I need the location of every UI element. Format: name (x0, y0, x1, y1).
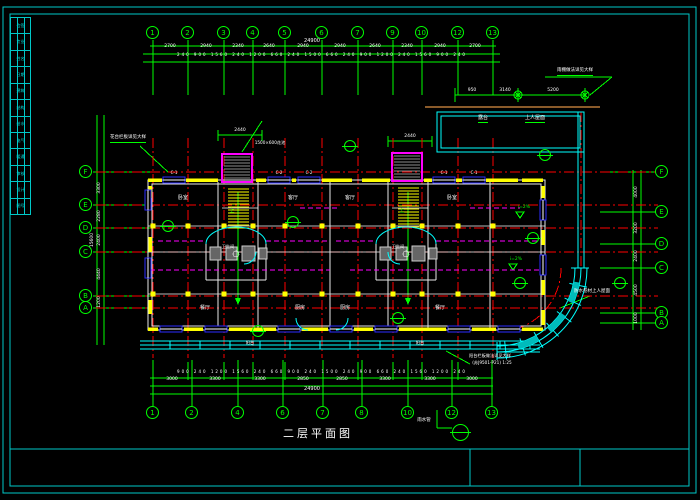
axis-bubble-top-1: 1 (146, 26, 159, 39)
axis-bubble-bottom-4: 4 (231, 406, 244, 419)
title-block-row: 电气 (11, 133, 30, 149)
axis-bubble-bottom-1: 1 (146, 406, 159, 419)
detail-callout (527, 232, 539, 244)
axis-bubble-right-D: D (655, 237, 668, 250)
dimension-text: 4000 (635, 186, 640, 197)
detail-callout (514, 277, 526, 289)
drawing-title: 二层平面图 (283, 425, 353, 441)
room-label: 卧室 (178, 196, 188, 201)
axis-bubble-top-12: 12 (451, 26, 464, 39)
axis-bubble-left-E: E (79, 198, 92, 211)
annotation-label: C-2 (306, 171, 313, 175)
dimension-text: 2940 (434, 45, 445, 50)
axis-bubble-right-A: A (655, 316, 668, 329)
annotation-label: 上人屋面 (525, 116, 545, 123)
annotation-label: 上 (229, 209, 234, 214)
axis-bubble-bottom-13: 13 (485, 406, 498, 419)
dimension-text: 2400 (635, 250, 640, 261)
detail-callout (614, 277, 626, 289)
dimension-text: 2850 (336, 378, 347, 383)
dimension-text: 3300 (254, 378, 265, 383)
dimension-text: 4500 (635, 284, 640, 295)
dimension-text: 3300 (209, 378, 220, 383)
annotation-label: C-1 (441, 171, 448, 175)
dimension-text: 5200 (547, 89, 558, 94)
room-label: 阳台 (246, 341, 254, 345)
title-block-row: 图号 (11, 199, 30, 214)
axis-bubble-top-2: 2 (181, 26, 194, 39)
room-label: 阳台 (416, 341, 424, 345)
annotation-label: C-1 (471, 171, 478, 175)
dimension-text: 3300 (424, 378, 435, 383)
dimension-text: 2940 (334, 45, 345, 50)
title-block: 会签专业姓名日期建筑结构给水电气暖通审核设计图号 (10, 17, 31, 215)
title-block-row: 结构 (11, 100, 30, 116)
annotation-label: i=2% (518, 206, 530, 211)
title-block-row: 会签 (11, 18, 30, 34)
title-block-row: 给水 (11, 117, 30, 133)
dimension-text: 240 900 1560 240 1200 660 240 1500 660 2… (177, 53, 467, 57)
axis-bubble-bottom-12: 12 (445, 406, 458, 419)
stair-arrow-icon (235, 298, 241, 305)
dimension-text: 2280 (98, 210, 103, 221)
annotation-label: C-2 (276, 171, 283, 175)
annotation-label: 防水卷材上人屋面 (574, 290, 610, 295)
annotation-label: i=2% (510, 258, 522, 263)
dimension-text: 3140 (499, 89, 510, 94)
dimension-text: 1000 (635, 312, 640, 323)
balcony (140, 227, 540, 352)
dimension-text: 2440 (234, 129, 245, 134)
slope-mark-icon (516, 212, 524, 218)
annotation-lines (140, 91, 590, 428)
axis-bubble-top-5: 5 (278, 26, 291, 39)
annotation-label: 花台栏板详见大样 (110, 136, 146, 143)
axis-bubble-bottom-7: 7 (316, 406, 329, 419)
stair-arrow-icon (405, 298, 411, 305)
room-label: 客厅 (345, 196, 355, 201)
dimension-text: 2440 (404, 135, 415, 140)
room-label: 厨房 (340, 306, 350, 311)
room-label: 餐厅 (200, 306, 210, 311)
dimension-text: 2700 (164, 45, 175, 50)
dimension-text: 2340 (232, 45, 243, 50)
axis-bubble-left-C: C (79, 245, 92, 258)
annotation-label: 露台 (478, 116, 488, 123)
axis-bubble-top-3: 3 (217, 26, 230, 39)
title-block-divider (24, 18, 25, 214)
axis-bubble-top-13: 13 (486, 26, 499, 39)
axis-lines (96, 112, 658, 358)
title-block-row: 专业 (11, 34, 30, 50)
dimension-text: 2400 (98, 234, 103, 245)
dimension-text: 2340 (401, 45, 412, 50)
axis-bubble-top-6: 6 (315, 26, 328, 39)
axis-bubble-bottom-8: 8 (355, 406, 368, 419)
dimension-text: 2640 (263, 45, 274, 50)
detail-callout (344, 140, 356, 152)
title-block-row: 姓名 (11, 51, 30, 67)
annotation-label: (苏J9501-P21) 1:25 (472, 361, 511, 365)
dimension-text: 24900 (304, 39, 320, 44)
room-label: 卫生间 (222, 245, 235, 249)
annotation-label: 1500×600花池 (255, 141, 286, 145)
axis-bubble-left-A: A (79, 301, 92, 314)
detail-callout (539, 149, 551, 161)
terrace (437, 112, 584, 268)
title-block-row: 审核 (11, 166, 30, 182)
dimension-text: 2940 (200, 45, 211, 50)
annotation-label: C-1 (171, 171, 178, 175)
title-block-row: 建筑 (11, 84, 30, 100)
axis-bubble-bottom-2: 2 (185, 406, 198, 419)
room-label: 客厅 (288, 196, 298, 201)
axis-bubble-right-F: F (655, 165, 668, 178)
dimension-text: 3000 (166, 378, 177, 383)
dimension-text: 1200 (98, 296, 103, 307)
title-block-row: 暖通 (11, 149, 30, 165)
dimension-text: 3300 (379, 378, 390, 383)
dimension-text: 24900 (304, 387, 320, 392)
detail-callout (252, 325, 264, 337)
annotation-label: 雨水管 (417, 419, 431, 424)
dimension-text: 2850 (297, 378, 308, 383)
detail-callout (287, 216, 299, 228)
room-label: 餐厅 (435, 306, 445, 311)
axis-bubble-top-4: 4 (246, 26, 259, 39)
axis-bubble-bottom-10: 10 (401, 406, 414, 419)
dimension-text: 3200 (635, 222, 640, 233)
detail-callout (162, 220, 174, 232)
axis-bubble-right-C: C (655, 261, 668, 274)
detail-callout (392, 312, 404, 324)
axis-bubble-left-F: F (79, 165, 92, 178)
annotation-label: 上 (399, 209, 404, 214)
title-block-row: 设计 (11, 182, 30, 198)
dimension-text: 2640 (369, 45, 380, 50)
dimension-text: 900 240 1200 1560 240 660 900 240 1500 2… (177, 370, 467, 374)
dimension-lines (93, 40, 656, 406)
detail-callout (452, 424, 469, 441)
room-label: 卫生间 (392, 245, 405, 249)
sheet-frame (3, 7, 696, 493)
room-label: 卧室 (447, 196, 457, 201)
axis-bubble-top-7: 7 (351, 26, 364, 39)
axis-bubble-right-E: E (655, 205, 668, 218)
dimension-text: 3300 (98, 182, 103, 193)
axis-bubble-left-D: D (79, 221, 92, 234)
axis-bubble-top-10: 10 (415, 26, 428, 39)
axis-bubble-top-9: 9 (386, 26, 399, 39)
dimension-text: 2700 (469, 45, 480, 50)
title-block-divider (17, 18, 18, 214)
dimension-text: 2940 (297, 45, 308, 50)
annotation-label: 阳台栏板做法详见大样 (469, 354, 511, 358)
cad-sheet: 会签专业姓名日期建筑结构给水电气暖通审核设计图号 二层平面图 123456791… (0, 0, 700, 500)
dimension-text: 950 (468, 89, 477, 94)
dimension-text: 3000 (466, 378, 477, 383)
annotation-label: 雨棚做法详见大样 (557, 69, 593, 76)
slope-mark-icon (509, 264, 517, 270)
title-block-row: 日期 (11, 67, 30, 83)
room-label: 厨房 (295, 306, 305, 311)
axis-bubble-bottom-6: 6 (276, 406, 289, 419)
dimension-text: 4440 (98, 268, 103, 279)
dimension-text: 15600 (91, 233, 96, 247)
